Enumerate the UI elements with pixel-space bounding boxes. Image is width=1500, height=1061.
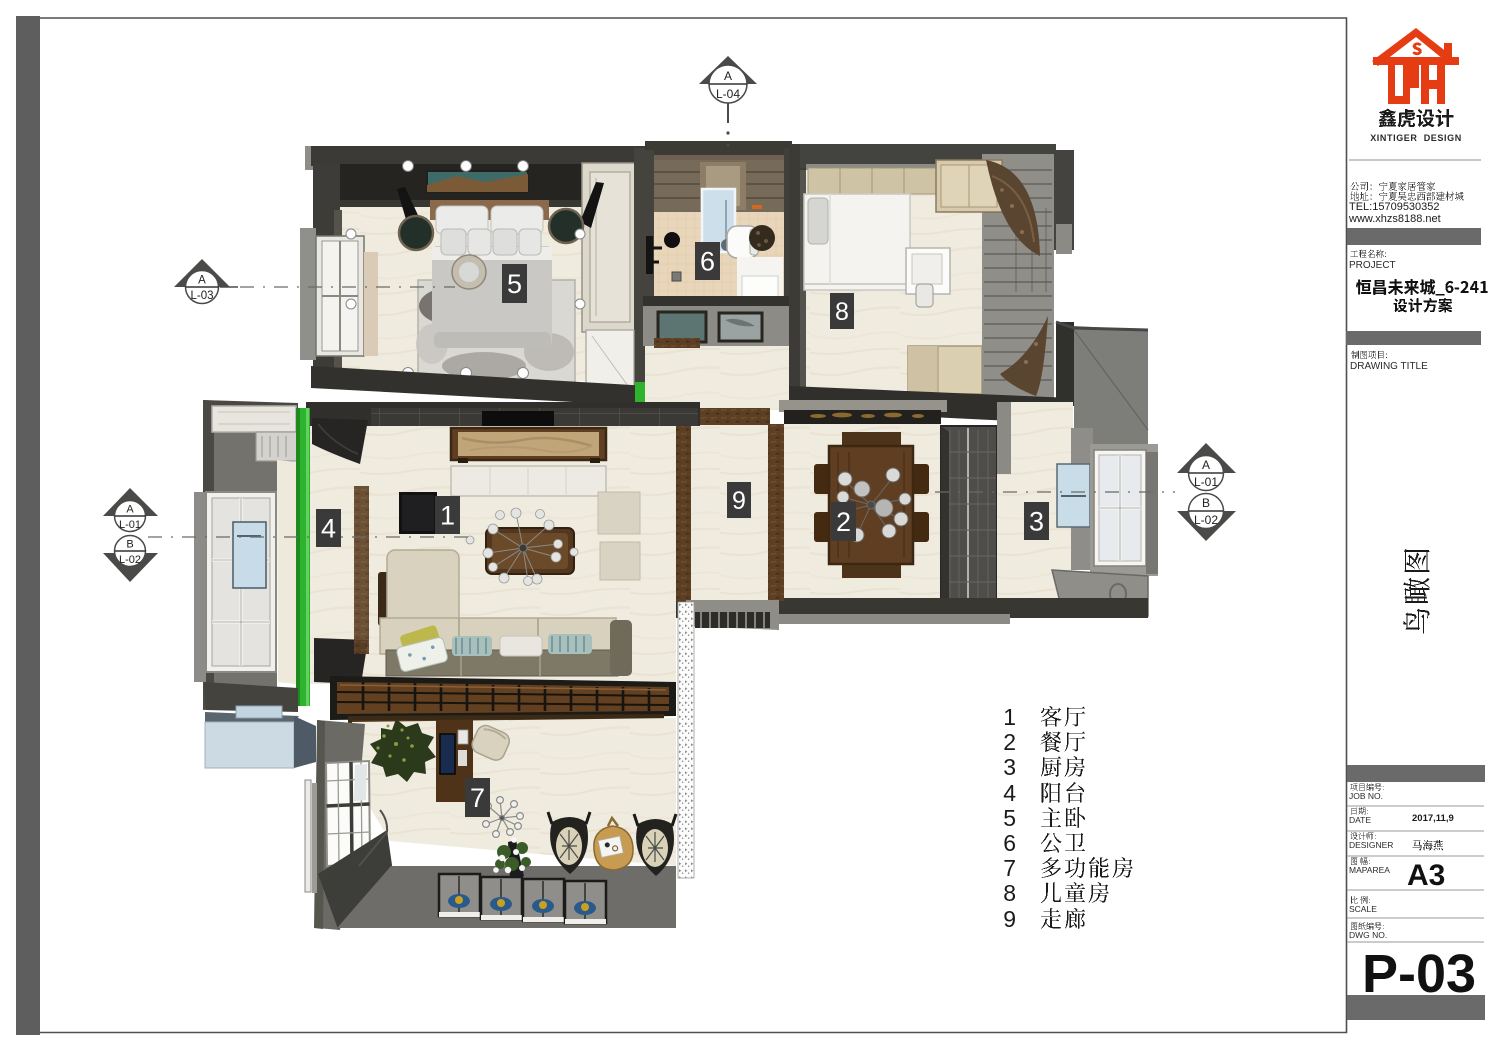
svg-text:1: 1: [1003, 704, 1016, 730]
svg-text:L-01: L-01: [1194, 475, 1218, 489]
svg-text:7: 7: [1003, 855, 1016, 881]
svg-text:2: 2: [836, 507, 851, 537]
svg-text:SCALE: SCALE: [1349, 904, 1377, 914]
svg-text:2017,11,9: 2017,11,9: [1412, 813, 1454, 824]
svg-text:4: 4: [321, 514, 336, 544]
svg-text:MAPAREA: MAPAREA: [1349, 865, 1390, 875]
svg-text:www.xhzs8188.net: www.xhzs8188.net: [1348, 213, 1441, 225]
svg-text:A3: A3: [1407, 859, 1445, 892]
svg-text:JOB NO.: JOB NO.: [1349, 791, 1383, 801]
svg-text:8: 8: [835, 298, 849, 326]
svg-text:B: B: [126, 539, 133, 551]
svg-text:9: 9: [1003, 906, 1016, 932]
svg-text:5: 5: [1003, 805, 1016, 831]
svg-text:3: 3: [1029, 507, 1044, 537]
svg-text:DATE: DATE: [1349, 815, 1371, 825]
svg-text:L-04: L-04: [716, 87, 740, 101]
svg-text:B: B: [1202, 496, 1210, 510]
svg-text:3: 3: [1003, 754, 1016, 780]
svg-text:L-02: L-02: [1194, 513, 1218, 527]
svg-text:L-02: L-02: [119, 554, 141, 566]
svg-text:9: 9: [732, 487, 746, 515]
svg-text:8: 8: [1003, 880, 1016, 906]
svg-text:4: 4: [1003, 780, 1016, 806]
svg-text:A: A: [724, 69, 732, 83]
svg-text:TEL:15709530352: TEL:15709530352: [1349, 201, 1440, 213]
svg-text:A: A: [198, 275, 206, 287]
svg-text:XINTIGER DESIGN: XINTIGER DESIGN: [1370, 133, 1462, 143]
svg-text:L-01: L-01: [119, 519, 141, 531]
svg-text:PROJECT: PROJECT: [1349, 260, 1396, 271]
svg-text:A: A: [126, 504, 134, 516]
svg-text:A: A: [1202, 458, 1210, 472]
svg-text:2: 2: [1003, 729, 1016, 755]
svg-text:6: 6: [1003, 830, 1016, 856]
svg-text:5: 5: [507, 269, 522, 299]
svg-text:7: 7: [470, 783, 485, 813]
svg-text:L-03: L-03: [190, 290, 213, 302]
svg-text:1: 1: [440, 501, 455, 531]
svg-text:6: 6: [700, 247, 715, 277]
svg-text:DESIGNER: DESIGNER: [1349, 840, 1393, 850]
svg-text:DRAWING TITLE: DRAWING TITLE: [1350, 361, 1428, 372]
svg-text:DWG NO.: DWG NO.: [1349, 930, 1387, 940]
